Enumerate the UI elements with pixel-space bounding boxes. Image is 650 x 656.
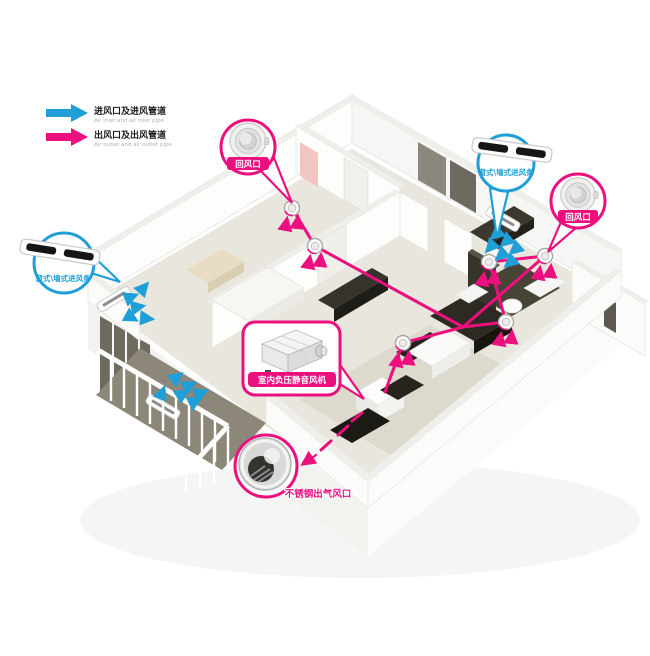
legend: 进风口及进风管道 Air inlet and air inlet pipe 出风…: [46, 104, 172, 148]
legend-inlet-sublabel: Air inlet and air inlet pipe: [94, 118, 164, 124]
legend-outlet-label: 出风口及出风管道: [94, 129, 166, 141]
inlet-arrow-icon: [46, 104, 88, 122]
callout-label: 不锈钢出气风口: [285, 488, 352, 500]
legend-inlet-label: 进风口及进风管道: [94, 105, 166, 117]
ceiling-vent-fitting: [499, 315, 514, 330]
legend-outlet-sublabel: Air outlet and air outlet pipe: [94, 142, 172, 148]
toilet: [502, 299, 522, 313]
outlet-arrow-icon: [46, 128, 88, 146]
callout-label: 室内负压静音风机: [258, 375, 327, 386]
stainless-vent-icon: [239, 438, 291, 490]
ventilation-diagram: 进风口及进风管道 Air inlet and air inlet pipe 出风…: [0, 0, 650, 656]
callout-label: 窗式\墙式进风条: [35, 273, 91, 283]
callout-label: 回风口: [565, 213, 591, 223]
ceiling-vent-fitting: [482, 255, 497, 270]
callout-label: 窗式\墙式进风条: [478, 167, 534, 177]
ceiling-vent-fitting: [308, 239, 323, 254]
house-illustration: [80, 95, 649, 578]
diagram-canvas: 进风口及进风管道 Air inlet and air inlet pipe 出风…: [0, 0, 650, 656]
ceiling-vent-fitting: [396, 336, 411, 351]
callout-label: 回风口: [235, 160, 261, 170]
